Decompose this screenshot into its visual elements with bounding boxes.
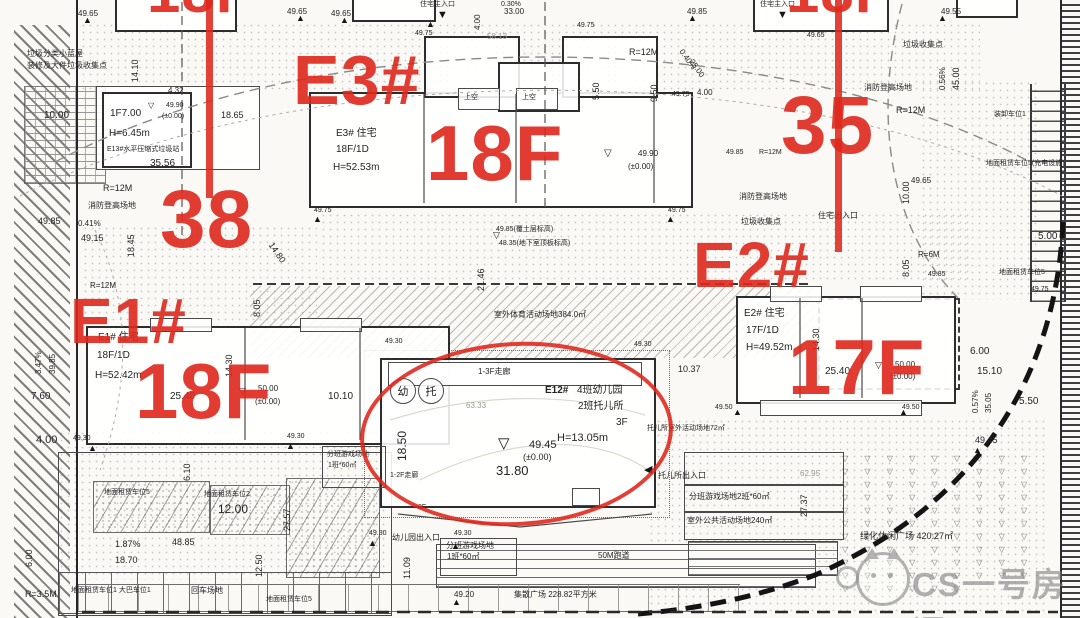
dim-label: 49.30 <box>634 341 652 348</box>
site-label: 上空 <box>522 94 536 101</box>
dim-label: R=12M <box>629 48 658 57</box>
dim-label: 62.95 <box>800 470 820 478</box>
site-label: 回车场地 <box>191 587 223 595</box>
dim-label: 27.37 <box>800 494 809 517</box>
elevation-marker-icon: ▲ <box>426 20 435 29</box>
site-label: 绿化休闲广场 420.27㎡ <box>860 532 953 541</box>
red-partial-label-top-right: 18F <box>786 0 892 19</box>
dim-label: 3.47% <box>35 351 43 374</box>
site-label: 室外体育活动场地384.0㎡ <box>494 311 586 319</box>
dim-label: R=12M <box>759 149 782 156</box>
dim-label: R=3.5M <box>25 590 57 599</box>
dim-label: 49.75 <box>672 91 690 98</box>
red-label-e3-floors: 18F <box>426 118 563 190</box>
e3-height-label: H=52.53m <box>333 163 379 174</box>
dim-label: 5.00 <box>1038 232 1057 243</box>
watermark-text: CS一号房评 <box>912 558 1080 618</box>
dim-label: 4.00 <box>697 89 713 97</box>
dim-label: 39.85 <box>49 354 57 374</box>
e2-height-label: H=49.52m <box>746 343 792 354</box>
entrance-marker-icon: ▼ <box>437 10 448 21</box>
site-label: 装修及大件垃圾收集点 <box>27 62 107 70</box>
elevation-marker-icon: ▲ <box>973 446 982 455</box>
dim-label: 35.05 <box>985 393 993 413</box>
elevation-marker-icon: ▲ <box>368 539 377 548</box>
elevation-marker-icon: ▲ <box>688 14 697 23</box>
dim-label: 49.75 <box>415 30 433 37</box>
dim-label: R=6M <box>918 251 940 259</box>
dim-label: 6.00 <box>970 347 989 358</box>
site-label: 垃圾收集点 <box>741 218 781 226</box>
dim-label: 10.00 <box>44 111 69 122</box>
dim-label: R=12M <box>103 184 132 193</box>
elevation-marker-icon: ▲ <box>451 542 460 551</box>
dim-label: 8.05 <box>902 259 911 277</box>
dim-label: 4.00 <box>474 14 482 30</box>
site-label: 室外公共活动场地240㎡ <box>687 517 772 525</box>
site-label: 1班*60㎡ <box>328 462 356 469</box>
elevation-marker-icon: ▲ <box>296 14 305 23</box>
dim-label: 6.10 <box>183 463 192 481</box>
site-label: 消防登高场地 <box>88 202 136 210</box>
dim-label: 49.90 <box>166 102 184 109</box>
e13-name-label: E13#水平压缩式垃圾站 <box>107 146 179 153</box>
site-label: 地面租赁车位5(充电设施) <box>986 160 1065 167</box>
e13-height-label: H=6.45m <box>109 129 150 140</box>
e13-floor-label: 1F7.00 <box>110 109 141 120</box>
dim-label: 14.10 <box>131 59 140 82</box>
watermark-cat-logo-icon <box>856 552 910 606</box>
dim-label: 0.57% <box>972 390 980 413</box>
site-label: 幼儿园出入口 <box>392 534 440 542</box>
dim-label: 12.50 <box>255 554 264 577</box>
dim-label: 49.30 <box>287 433 305 440</box>
site-label: 集散广场 228.82平方米 <box>514 591 597 599</box>
dim-label: 49.65 <box>911 177 931 185</box>
e3-name-label: E3# 住宅 <box>336 129 377 140</box>
red-label-e1-floors: 18F <box>135 356 272 428</box>
dim-label: 33.00 <box>504 8 524 16</box>
dim-label: 49.65 <box>807 32 825 39</box>
dim-label: 18.70 <box>115 556 138 565</box>
cat-ear-icon <box>887 548 901 559</box>
elevation-marker-icon: ▲ <box>88 444 97 453</box>
red-label-e3: E3# <box>293 48 421 112</box>
dim-label: 49.85 <box>928 271 946 278</box>
dim-label: 49.30 <box>385 338 403 345</box>
dim-label: 8.05 <box>253 299 262 317</box>
elevation-marker-icon: ▲ <box>313 215 322 224</box>
dim-label: 49.85 <box>726 149 744 156</box>
red-label-e2: E2# <box>693 236 810 295</box>
red-label-e1: E1# <box>70 292 187 351</box>
dim-label: 11.09 <box>403 557 412 579</box>
dim-label: 48.85 <box>172 538 195 547</box>
dim-label: 7.60 <box>31 392 50 403</box>
dim-label: 18.45 <box>127 234 136 257</box>
dim-label: 0.30% <box>501 1 521 8</box>
site-label: 托儿所出入口 <box>658 472 706 480</box>
dim-label: 4.32 <box>168 87 184 95</box>
dim-label: 18.65 <box>221 111 244 120</box>
dim-label: 49.75 <box>1031 286 1049 293</box>
cat-eye-icon <box>871 573 876 578</box>
dim-label: 21.46 <box>477 268 486 291</box>
elevation-marker-icon: ▲ <box>666 215 675 224</box>
dim-label: 5.50 <box>592 82 601 100</box>
dim-label: 49.30 <box>369 530 387 537</box>
cat-eye-icon <box>888 573 893 578</box>
dim-label: 49.30 <box>454 530 472 537</box>
site-label: 地面租赁车位2 <box>204 491 250 498</box>
datum-marker-icon: ▽ <box>604 149 612 159</box>
dim-label: 0.41% <box>78 220 101 228</box>
elevation-marker-icon: ▲ <box>83 16 92 25</box>
elevation-marker-icon: ▲ <box>733 408 742 417</box>
e2-name-label: E2# 住宅 <box>744 309 785 320</box>
dim-label: 27.57 <box>283 508 292 531</box>
red-partial-label-top-left: 18F <box>147 0 253 19</box>
e2-floors-label: 17F/1D <box>746 326 779 337</box>
dim-label: 49.90 <box>638 150 658 158</box>
dim-label: 10.00 <box>902 181 911 204</box>
dim-label: R=12M <box>896 106 925 115</box>
elevation-marker-icon: ▲ <box>286 442 295 451</box>
datum-marker-icon: ▽ <box>148 102 154 110</box>
site-label: 垃圾分类小蓝屋 <box>27 50 83 58</box>
elevation-marker-icon: ▲ <box>938 14 947 23</box>
red-label-e2-floors: 17F <box>788 332 925 404</box>
dim-label: 49.50 <box>715 404 733 411</box>
red-label-35: 35 <box>781 88 874 163</box>
red-label-38: 38 <box>160 182 253 257</box>
dim-label: (±0.00) <box>162 113 184 120</box>
dim-label: 10.10 <box>328 392 353 403</box>
red-annotation-line <box>206 0 213 198</box>
dim-label: 49.15 <box>81 234 104 243</box>
cat-ear-icon <box>865 548 879 559</box>
site-label: 50M跑道 <box>598 552 630 560</box>
dim-label: 12.00 <box>218 503 248 516</box>
dim-label: (±0.00) <box>628 163 653 171</box>
datum-marker-icon: ▽ <box>493 231 500 240</box>
dim-label: 9.50 <box>650 84 659 102</box>
site-label: 装卸车位1 <box>994 111 1026 118</box>
e3-floors-label: 18F/1D <box>336 145 369 156</box>
dim-label: 58.13 <box>487 33 507 41</box>
dim-label: 45.00 <box>952 67 961 90</box>
site-label: 消防登高场地 <box>739 193 787 201</box>
dim-label: 49.85 <box>38 217 61 226</box>
site-label: 上空 <box>464 94 478 101</box>
dim-label: 1.87% <box>115 540 141 549</box>
site-label: 垃圾收集点 <box>903 41 943 49</box>
elevation-marker-icon: ▲ <box>340 16 349 25</box>
dim-label: 48.35(地下室顶板标高) <box>499 240 570 247</box>
site-label: 地面租赁车位5 <box>266 596 312 603</box>
dim-label: 15.10 <box>977 367 1002 378</box>
dim-label: 0.56% <box>939 67 947 90</box>
dim-label: 5.50 <box>1019 397 1038 408</box>
dim-label: 6.00 <box>25 549 34 567</box>
site-label: 地面租赁车位5 <box>999 269 1045 276</box>
dim-label: 49.85(覆土层标高) <box>496 226 553 233</box>
site-label: 分班游戏场地2班*60㎡ <box>689 493 769 501</box>
dim-label: 10.37 <box>678 365 701 374</box>
site-plan-drawing: 幼 托 49.65 14.10 4.32 18.65 49.90 (±0.00)… <box>0 0 1080 618</box>
dim-label: 4.00 <box>36 435 57 447</box>
dim-label: 35.56 <box>150 159 175 170</box>
dim-label: 49.30 <box>73 435 91 442</box>
site-label: 住宅主入口 <box>420 1 455 8</box>
elevation-marker-icon: ▲ <box>452 598 461 607</box>
site-label: 地面租赁车位5 <box>104 489 150 496</box>
site-label: 1班*60㎡ <box>447 553 479 561</box>
site-label: 地面租赁车位1 大巴车位1 <box>71 587 151 594</box>
dim-label: 49.75 <box>577 22 595 29</box>
